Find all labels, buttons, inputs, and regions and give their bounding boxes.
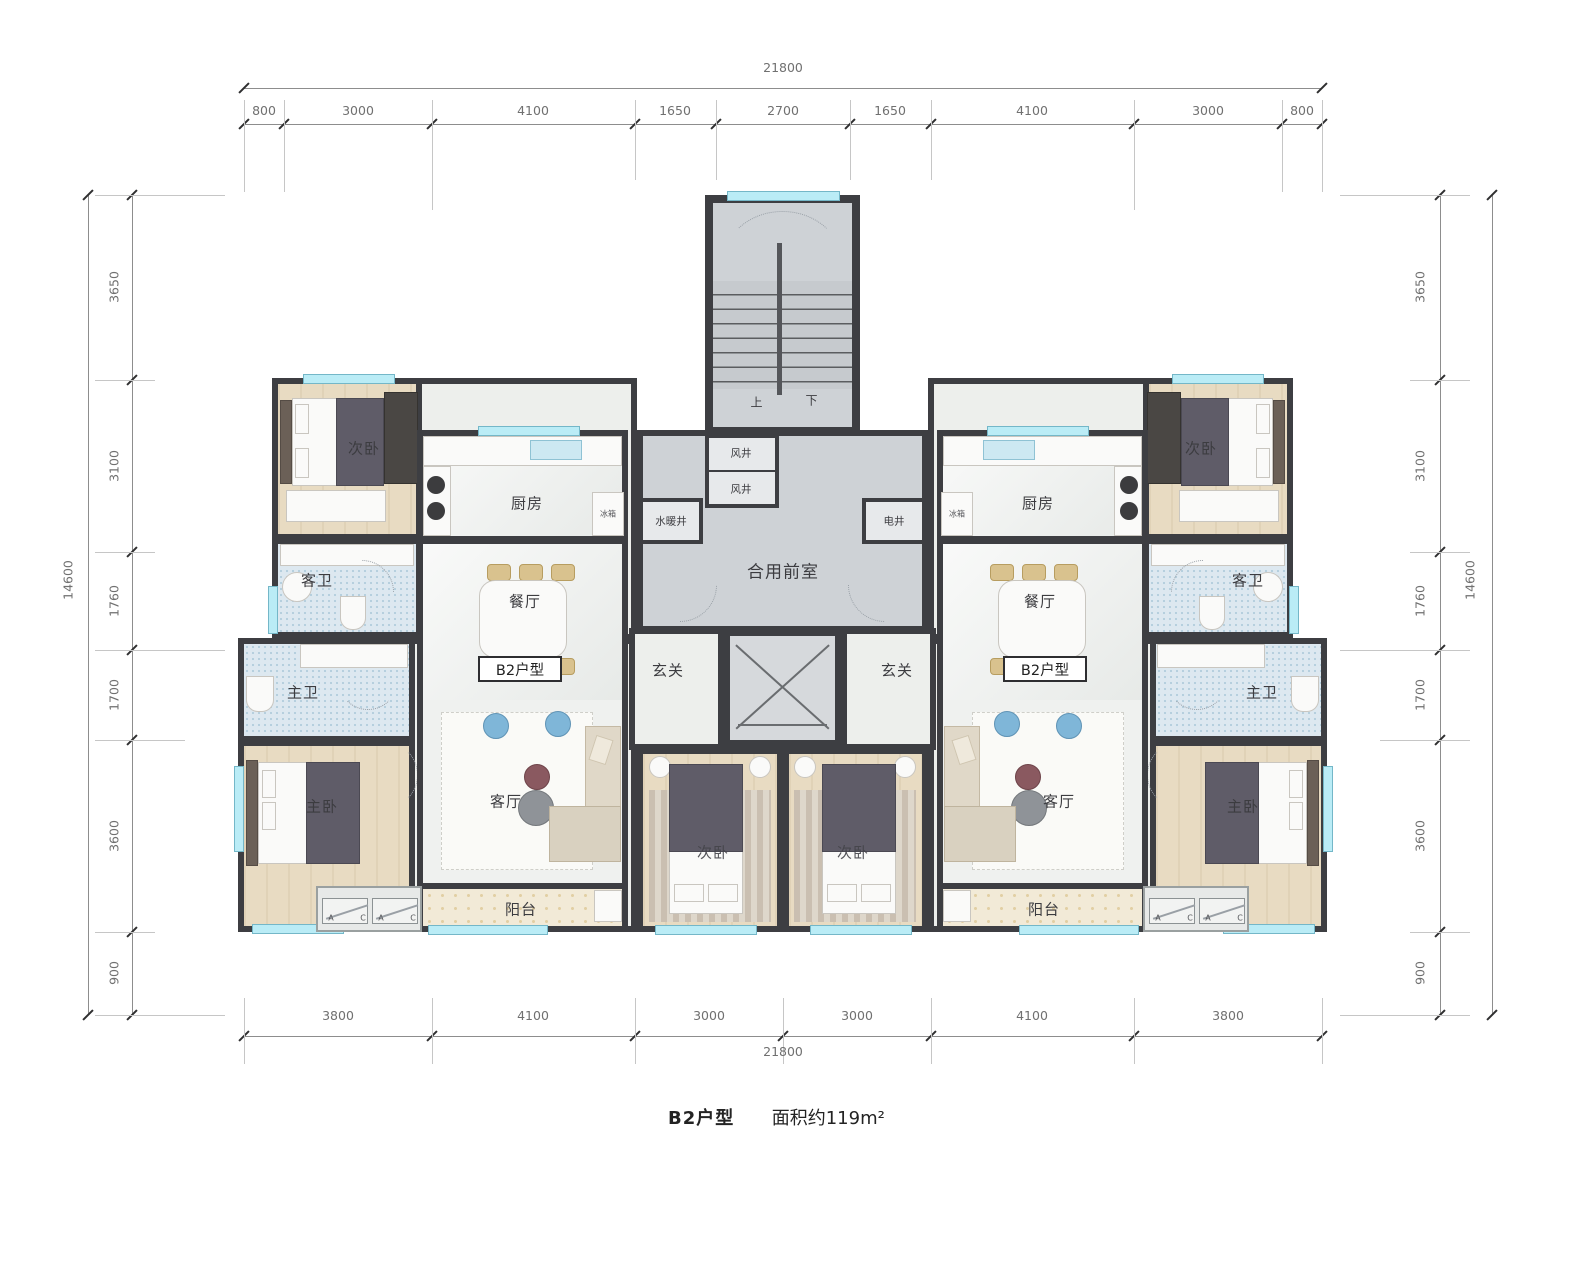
dim-line xyxy=(244,88,1322,89)
extension-line xyxy=(95,552,155,553)
window xyxy=(810,925,912,935)
elevator xyxy=(722,628,843,748)
extension-line xyxy=(1134,100,1135,210)
dim-line xyxy=(88,195,89,1015)
dim-top-seg: 4100 xyxy=(517,103,549,118)
bed-pillow xyxy=(262,802,276,830)
extension-line xyxy=(1340,650,1470,651)
right-balcony-label: 阳台 xyxy=(1028,899,1060,920)
bed-headboard xyxy=(246,760,258,866)
door-arc xyxy=(1147,742,1213,808)
ac-mark-a: A xyxy=(328,914,333,923)
shared-lobby-label: 合用前室 xyxy=(747,558,819,583)
extension-line xyxy=(284,100,285,192)
bed-pillow xyxy=(861,884,891,902)
dim-left-total: 14600 xyxy=(61,560,76,600)
stool xyxy=(649,756,671,778)
left-ac-platform: A C A C xyxy=(316,886,422,932)
extension-line xyxy=(95,380,155,381)
ac-mark-c: C xyxy=(1187,914,1193,923)
right-bedroom2-label: 次卧 xyxy=(1185,438,1217,459)
dim-top-seg: 4100 xyxy=(1016,103,1048,118)
dim-line xyxy=(1440,195,1441,1015)
extension-line xyxy=(635,998,636,1064)
window xyxy=(1019,925,1139,935)
right-foyer xyxy=(841,628,936,750)
dim-right-seg: 1700 xyxy=(1413,679,1428,711)
window xyxy=(727,191,840,201)
left-bedroom2-label: 次卧 xyxy=(348,438,380,459)
dresser xyxy=(1179,490,1279,522)
dim-bottom-seg: 3800 xyxy=(1212,1008,1244,1023)
ac-mark-c: C xyxy=(360,914,366,923)
ac-unit: A C xyxy=(1149,898,1195,924)
stair-rail xyxy=(777,243,782,395)
window xyxy=(478,426,580,436)
extension-line xyxy=(95,740,185,741)
dim-top-seg: 1650 xyxy=(659,103,691,118)
caption-area: 面积约119m² xyxy=(772,1108,885,1129)
dim-bottom-total: 21800 xyxy=(763,1044,803,1059)
dim-right-total: 14600 xyxy=(1463,560,1478,600)
extension-line xyxy=(1340,195,1470,196)
dim-right-seg: 3100 xyxy=(1413,450,1428,482)
stove-burner xyxy=(427,502,445,520)
left-foyer-label: 玄关 xyxy=(652,660,684,681)
right-kitchen-label: 厨房 xyxy=(1022,493,1054,514)
stair-treads xyxy=(713,281,852,389)
window xyxy=(234,766,244,852)
extension-line xyxy=(95,1015,225,1016)
left-dining-label: 餐厅 xyxy=(509,591,541,612)
bed-blanket xyxy=(669,764,743,852)
ac-unit: A C xyxy=(1199,898,1245,924)
right-master-bath-label: 主卫 xyxy=(1246,682,1278,703)
dim-bottom-seg: 3800 xyxy=(322,1008,354,1023)
dim-left-seg: 1700 xyxy=(107,679,122,711)
right-dining-label: 餐厅 xyxy=(1024,591,1056,612)
dresser xyxy=(286,490,386,522)
dim-right-seg: 3600 xyxy=(1413,820,1428,852)
stair-down-label: 下 xyxy=(805,392,818,409)
window xyxy=(987,426,1089,436)
bed-pillow xyxy=(295,404,309,434)
dining-chair xyxy=(1054,564,1078,581)
kitchen-counter xyxy=(423,436,622,466)
wind-shaft-label-2: 风井 xyxy=(731,482,752,497)
dining-chair xyxy=(519,564,543,581)
extension-line xyxy=(931,998,932,1064)
stove-burner xyxy=(427,476,445,494)
ac-mark-a: A xyxy=(1155,914,1160,923)
electrical-shaft-label: 电井 xyxy=(884,514,905,529)
armchair xyxy=(545,711,571,737)
extension-line xyxy=(1322,998,1323,1064)
ac-mark-c: C xyxy=(410,914,416,923)
ac-unit: A C xyxy=(372,898,418,924)
plumbing-shaft-label: 水暖井 xyxy=(655,514,687,529)
balcony-washer xyxy=(594,890,622,922)
bed-pillow xyxy=(295,448,309,478)
toilet xyxy=(1291,676,1319,712)
bed-pillow xyxy=(262,770,276,798)
dim-left-seg: 3100 xyxy=(107,450,122,482)
coffee-table xyxy=(1015,764,1041,790)
bed-pillow xyxy=(1289,802,1303,830)
sofa-seat xyxy=(549,806,621,862)
right-type-tag: B2户型 xyxy=(1003,656,1087,682)
door-arc xyxy=(338,650,398,710)
extension-line xyxy=(1410,380,1470,381)
ac-unit: A C xyxy=(322,898,368,924)
extension-line xyxy=(931,100,932,180)
ac-mark-a: A xyxy=(1205,914,1210,923)
coffee-table xyxy=(524,764,550,790)
elevator-door-line xyxy=(738,724,827,726)
toilet xyxy=(246,676,274,712)
dining-chair xyxy=(551,564,575,581)
extension-line xyxy=(1322,100,1323,192)
stove-burner xyxy=(1120,476,1138,494)
bed-headboard xyxy=(280,400,292,484)
armchair xyxy=(483,713,509,739)
extension-line xyxy=(432,100,433,210)
stairwell xyxy=(705,195,860,435)
bed-headboard xyxy=(1307,760,1319,866)
dim-right-seg: 1760 xyxy=(1413,585,1428,617)
right-master-bedroom-label: 主卧 xyxy=(1227,796,1259,817)
dim-left-seg: 3650 xyxy=(107,271,122,303)
dim-line xyxy=(244,124,1322,125)
bed-pillow xyxy=(827,884,857,902)
right-ac-platform: A C A C xyxy=(1143,886,1249,932)
dim-left-seg: 900 xyxy=(107,961,122,985)
ac-mark-a: A xyxy=(378,914,383,923)
dim-bottom-seg: 4100 xyxy=(1016,1008,1048,1023)
right-living-label: 客厅 xyxy=(1043,791,1075,812)
dim-bottom-seg: 3000 xyxy=(841,1008,873,1023)
coffee-table xyxy=(1011,790,1047,826)
extension-line xyxy=(95,195,225,196)
wardrobe xyxy=(1147,392,1181,484)
dim-top-seg: 2700 xyxy=(767,103,799,118)
left-kitchen-label: 厨房 xyxy=(511,493,543,514)
window xyxy=(1172,374,1264,384)
window xyxy=(655,925,757,935)
wind-shaft-label-1: 风井 xyxy=(731,446,752,461)
bed-pillow xyxy=(1256,404,1270,434)
kitchen-sink xyxy=(983,440,1035,460)
right-guest-bath-label: 客卫 xyxy=(1232,570,1264,591)
stool xyxy=(749,756,771,778)
left-foyer xyxy=(629,628,724,750)
extension-line xyxy=(1134,998,1135,1064)
bed-blanket xyxy=(822,764,896,852)
dim-top-seg: 800 xyxy=(252,103,276,118)
door-arc xyxy=(1167,650,1227,710)
dim-right-seg: 900 xyxy=(1413,961,1428,985)
right-center-bedroom-label: 次卧 xyxy=(837,842,869,863)
armchair xyxy=(994,711,1020,737)
extension-line xyxy=(244,998,245,1064)
dim-top-seg: 800 xyxy=(1290,103,1314,118)
dim-line xyxy=(1492,195,1493,1015)
bed-pillow xyxy=(1289,770,1303,798)
left-center-bedroom-label: 次卧 xyxy=(697,842,729,863)
left-fridge-label: 冰箱 xyxy=(600,509,616,520)
dim-bottom-seg: 3000 xyxy=(693,1008,725,1023)
left-type-tag: B2户型 xyxy=(478,656,562,682)
extension-line xyxy=(244,100,245,192)
extension-line xyxy=(95,650,225,651)
ac-mark-c: C xyxy=(1237,914,1243,923)
dim-bottom-seg: 4100 xyxy=(517,1008,549,1023)
extension-line xyxy=(635,100,636,180)
dim-line xyxy=(132,195,133,1015)
window xyxy=(428,925,548,935)
dim-top-total: 21800 xyxy=(763,60,803,75)
left-living-label: 客厅 xyxy=(490,791,522,812)
dim-right-seg: 3650 xyxy=(1413,271,1428,303)
dim-top-seg: 3000 xyxy=(1192,103,1224,118)
window xyxy=(1289,586,1299,634)
floor-plan-canvas: 21800 800 3000 4100 1650 2700 1650 4100 … xyxy=(0,0,1587,1280)
dim-top-seg: 3000 xyxy=(342,103,374,118)
left-guest-bath-label: 客卫 xyxy=(301,570,333,591)
right-foyer-label: 玄关 xyxy=(881,660,913,681)
caption: B2户型 面积约119m² xyxy=(668,1104,885,1130)
bed-pillow xyxy=(1256,448,1270,478)
window xyxy=(268,586,278,634)
bed-headboard xyxy=(1273,400,1285,484)
kitchen-sink xyxy=(530,440,582,460)
wardrobe xyxy=(384,392,418,484)
stair-up-label: 上 xyxy=(750,394,763,411)
balcony-washer xyxy=(943,890,971,922)
extension-line xyxy=(1282,100,1283,192)
right-type-tag-text: B2户型 xyxy=(1021,659,1069,680)
stool xyxy=(794,756,816,778)
dim-left-seg: 3600 xyxy=(107,820,122,852)
armchair xyxy=(1056,713,1082,739)
extension-line xyxy=(95,932,155,933)
dining-chair xyxy=(990,564,1014,581)
left-type-tag-text: B2户型 xyxy=(496,659,544,680)
window xyxy=(1323,766,1333,852)
left-master-bedroom-label: 主卧 xyxy=(306,796,338,817)
dining-chair xyxy=(487,564,511,581)
dim-top-seg: 1650 xyxy=(874,103,906,118)
stool xyxy=(894,756,916,778)
bed-pillow xyxy=(674,884,704,902)
extension-line xyxy=(1340,1015,1470,1016)
caption-unit-type: B2户型 xyxy=(668,1108,734,1129)
dining-chair xyxy=(1022,564,1046,581)
bed-pillow xyxy=(708,884,738,902)
extension-line xyxy=(1410,552,1470,553)
kitchen-counter xyxy=(943,436,1142,466)
door-arc xyxy=(352,742,418,808)
extension-line xyxy=(1380,740,1470,741)
extension-line xyxy=(850,100,851,180)
extension-line xyxy=(432,998,433,1064)
left-balcony-label: 阳台 xyxy=(505,899,537,920)
right-fridge-label: 冰箱 xyxy=(949,509,965,520)
left-master-bath-label: 主卫 xyxy=(287,682,319,703)
extension-line xyxy=(716,100,717,180)
stove-burner xyxy=(1120,502,1138,520)
window xyxy=(303,374,395,384)
shaft-divider xyxy=(709,470,775,472)
sofa-seat xyxy=(944,806,1016,862)
dim-left-seg: 1760 xyxy=(107,585,122,617)
extension-line xyxy=(1410,932,1470,933)
